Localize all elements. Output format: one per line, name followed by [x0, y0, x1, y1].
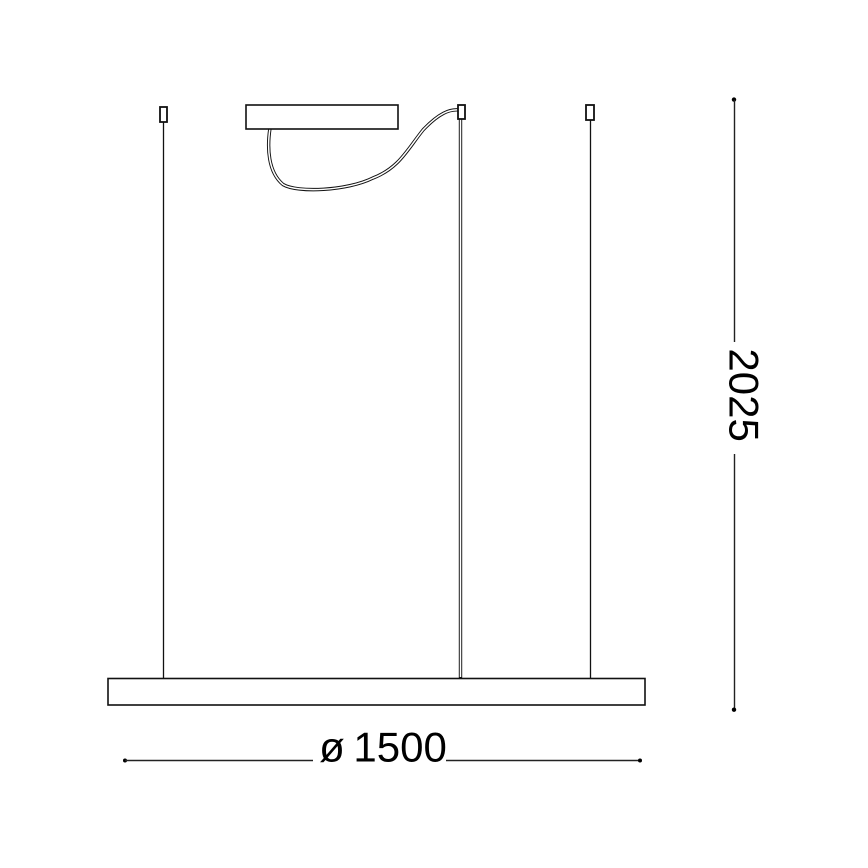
svg-text:ø 1500: ø 1500	[319, 724, 447, 771]
svg-text:2025: 2025	[721, 348, 768, 441]
